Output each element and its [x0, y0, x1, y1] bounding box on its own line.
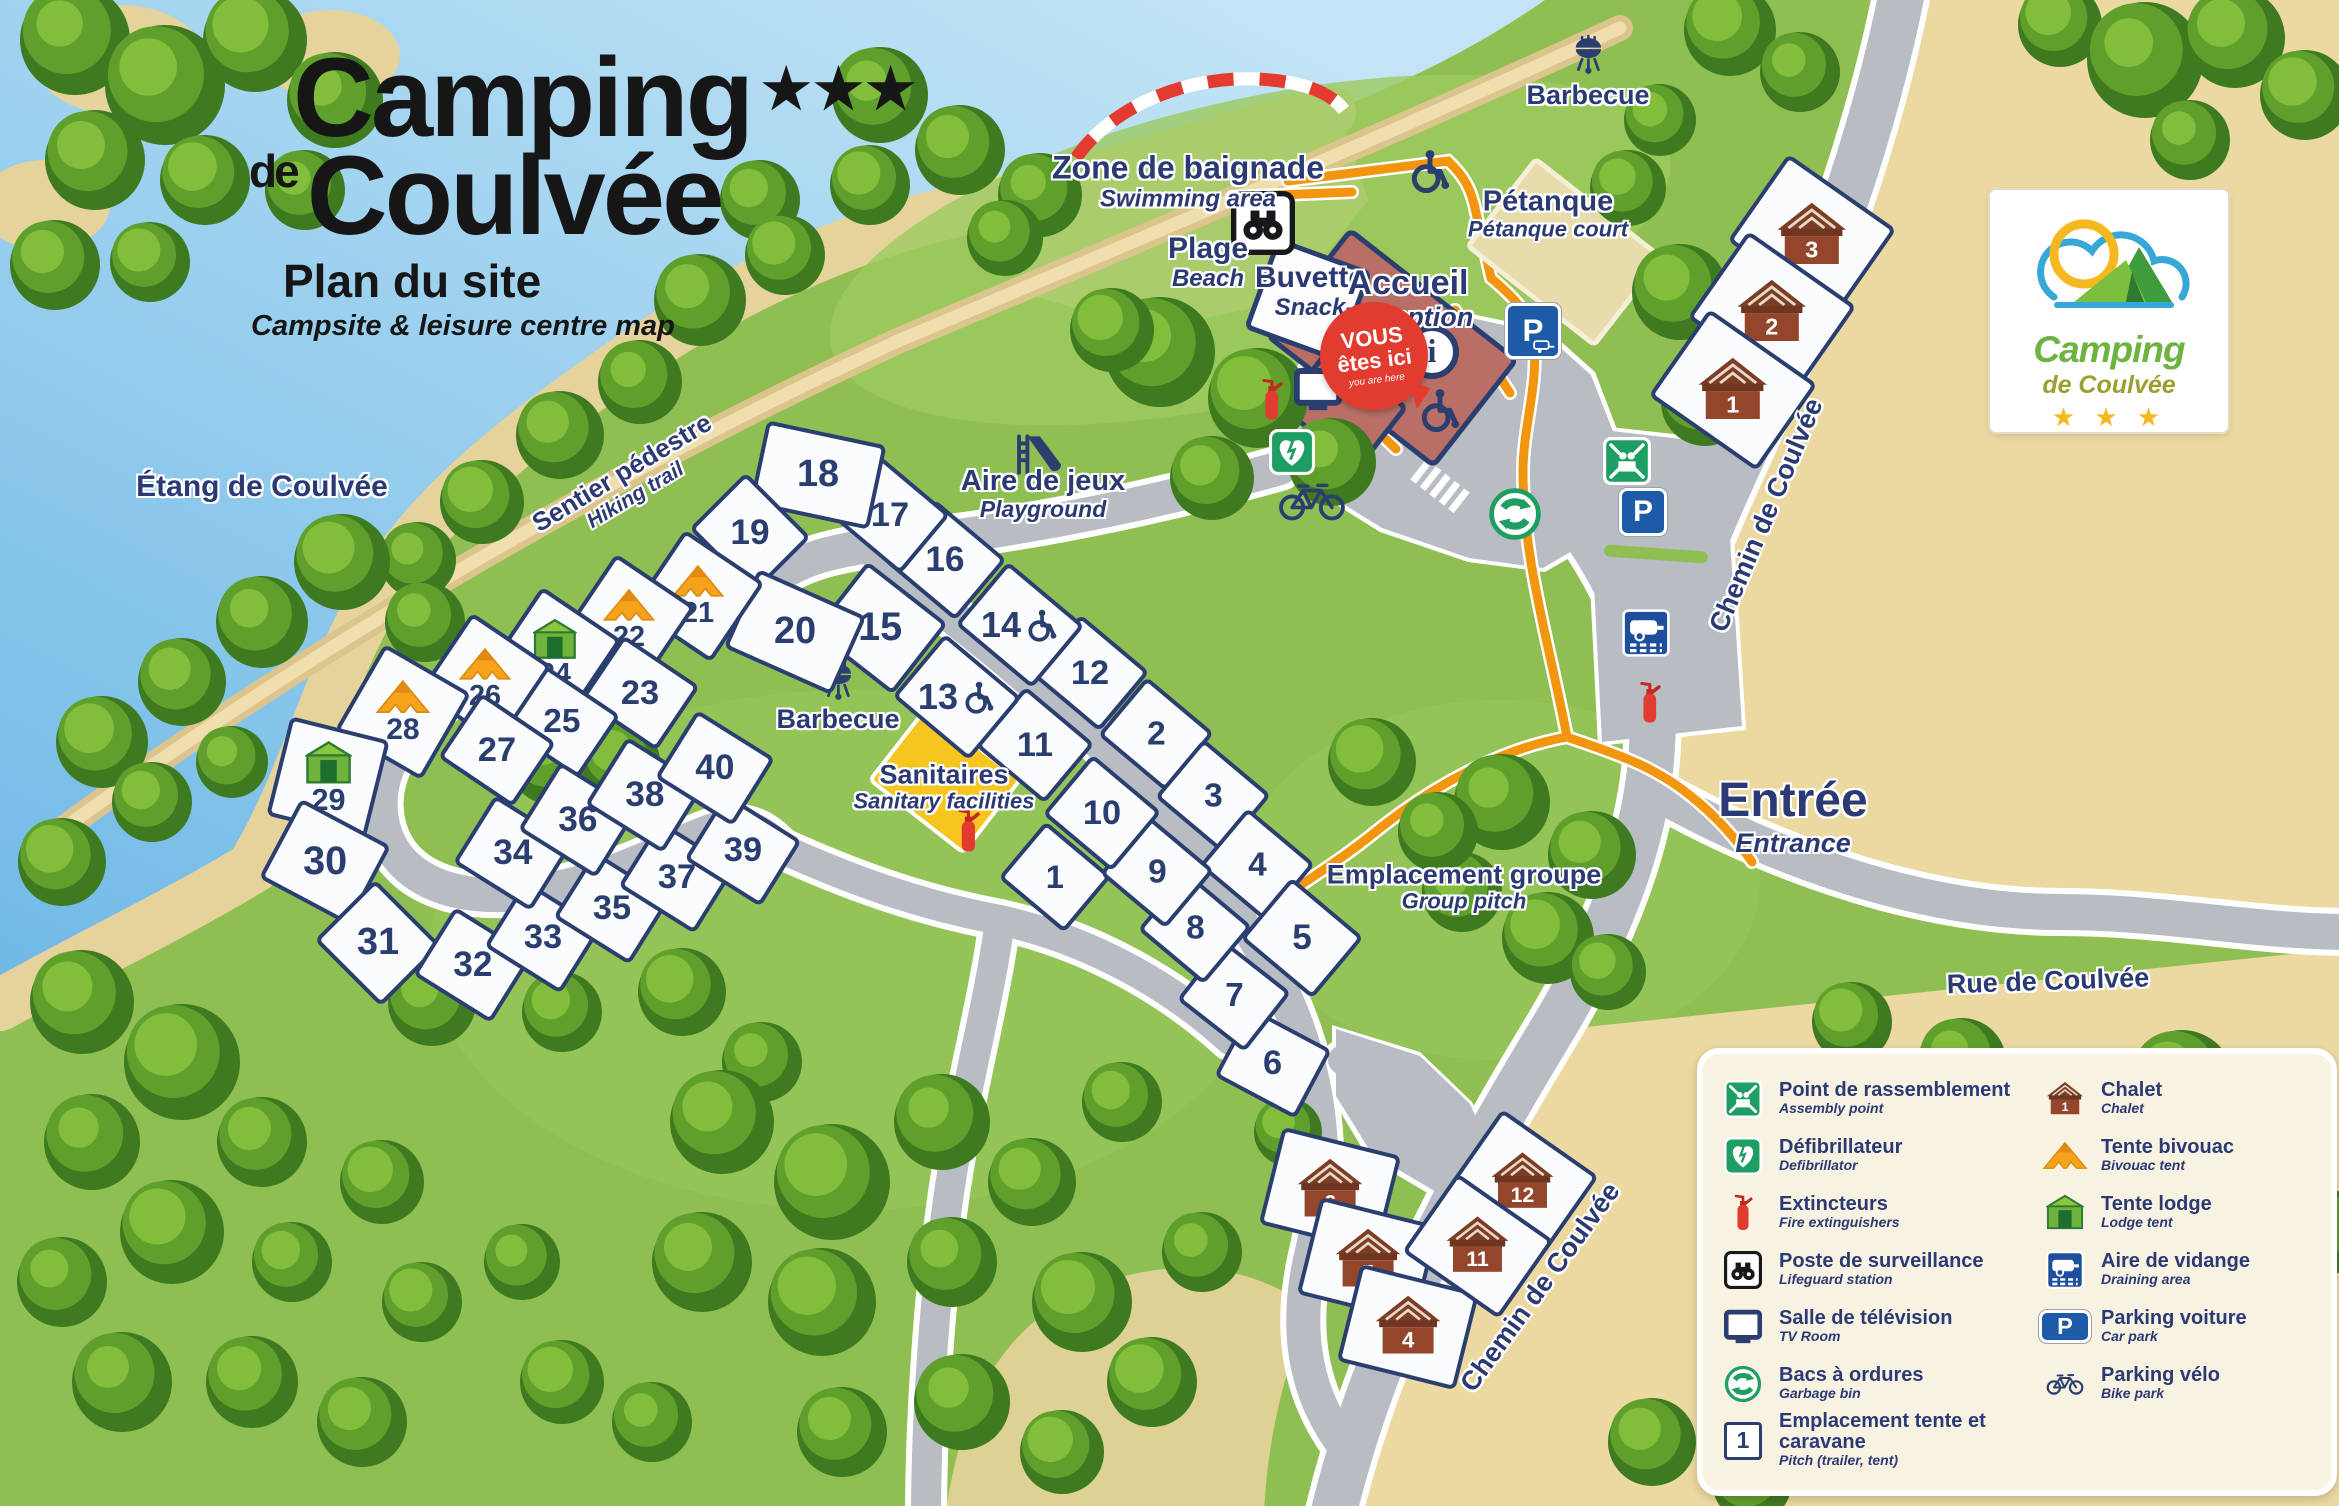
tree-icon — [797, 1387, 887, 1477]
label-entree: EntréeEntrance — [1718, 774, 1867, 858]
tree-icon — [2150, 100, 2230, 180]
chalet-icon: 11 — [1445, 1215, 1510, 1278]
tree-icon — [1032, 1252, 1132, 1352]
tree-icon — [17, 1237, 107, 1327]
binoculars-icon — [1717, 1251, 1769, 1289]
legend-label-en: Defibrillator — [1779, 1157, 1858, 1173]
legend-label-en: Draining area — [2101, 1271, 2190, 1287]
legend-label-en: Chalet — [2101, 1100, 2144, 1116]
tree-icon — [1170, 436, 1254, 520]
legend-item: DéfibrillateurDefibrillator — [1717, 1127, 2037, 1184]
tent-icon — [2039, 1141, 2091, 1171]
tree-icon — [294, 514, 390, 610]
tree-icon — [1082, 1062, 1162, 1142]
legend-label-en: Pitch (trailer, tent) — [1779, 1452, 1898, 1468]
legend-item: P Parking voitureCar park — [2039, 1298, 2329, 1355]
garbage-bin-icon — [1488, 487, 1542, 541]
bike-icon — [2039, 1371, 2091, 1396]
tree-icon — [206, 1336, 298, 1428]
tree-icon — [72, 1332, 172, 1432]
label-aire-de-jeux: Aire de jeuxPlayground — [961, 465, 1125, 523]
label-zone-baignade: Zone de baignadeSwimming area — [1052, 151, 1324, 214]
logo-stars-icon: ★ ★ ★ — [1990, 402, 2228, 433]
tree-icon — [30, 950, 134, 1054]
tree-icon — [894, 1074, 990, 1170]
chalet-icon: 1 — [1697, 356, 1769, 425]
svg-text:2: 2 — [1765, 313, 1778, 339]
tree-icon — [1070, 288, 1154, 372]
tree-icon — [1162, 1212, 1242, 1292]
tree-icon — [907, 1217, 997, 1307]
tree-icon — [217, 1097, 307, 1187]
legend-label-fr: Bacs à ordures — [1779, 1364, 1924, 1386]
lodge-icon — [2039, 1194, 2091, 1230]
tv-icon — [1717, 1309, 1769, 1345]
tree-icon — [484, 1224, 560, 1300]
logo-art-icon — [2014, 202, 2204, 322]
tree-icon — [216, 576, 308, 668]
campsite-logo: Camping de Coulvée ★ ★ ★ — [1990, 190, 2228, 432]
campsite-map-canvas: Camping★★★ deCoulvée Plan du site Campsi… — [0, 0, 2339, 1506]
title-de: de — [249, 148, 297, 194]
legend-item: Bacs à orduresGarbage bin — [1717, 1355, 2037, 1412]
fire-extinguisher-icon — [1627, 680, 1673, 726]
tree-icon — [10, 220, 100, 310]
defib-icon — [1717, 1137, 1769, 1175]
tree-icon — [670, 1070, 774, 1174]
legend-label-fr: Défibrillateur — [1779, 1136, 1902, 1158]
legend-label-fr: Point de rassemblement — [1779, 1079, 2010, 1101]
legend-column-right: 1 ChaletChalet Tente bivouacBivouac tent… — [2039, 1070, 2329, 1412]
svg-text:12: 12 — [1511, 1184, 1535, 1207]
label-sanitaires: SanitairesSanitary facilities — [854, 760, 1035, 815]
car-park-sign-icon: P — [1619, 488, 1667, 536]
tree-icon — [340, 1140, 424, 1224]
label-plage: PlageBeach — [1168, 232, 1248, 292]
chalet-icon: 4 — [1374, 1294, 1442, 1359]
map-subtitle-en: Campsite & leisure centre map — [251, 312, 918, 341]
legend-label-en: Assembly point — [1779, 1100, 1883, 1116]
tree-icon — [598, 340, 682, 424]
legend-label-en: Garbage bin — [1779, 1385, 1861, 1401]
parking-icon: P — [2039, 1310, 2091, 1343]
tree-icon — [774, 1124, 890, 1240]
legend-label-fr: Parking vélo — [2101, 1364, 2220, 1386]
tree-icon — [988, 1138, 1076, 1226]
svg-text:3: 3 — [1805, 236, 1818, 262]
tree-icon — [967, 200, 1043, 276]
tree-icon — [516, 391, 604, 479]
tree-icon — [1107, 1337, 1197, 1427]
map-title: Camping★★★ deCoulvée Plan du site Campsi… — [215, 42, 918, 341]
legend-label-en: Bivouac tent — [2101, 1157, 2185, 1173]
tree-icon — [120, 1180, 224, 1284]
legend-item: Parking véloBike park — [2039, 1355, 2329, 1412]
vidange-icon — [2039, 1251, 2091, 1289]
legend-label-en: TV Room — [1779, 1328, 1840, 1344]
tree-icon — [45, 110, 145, 210]
tree-icon — [252, 1222, 332, 1302]
legend-label-en: Lodge tent — [2101, 1214, 2173, 1230]
legend-item: 1 ChaletChalet — [2039, 1070, 2329, 1127]
car-park-sign-icon: P — [1505, 303, 1561, 359]
extinguisher-icon — [1717, 1193, 1769, 1233]
label-etang: Étang de Coulvée — [136, 470, 388, 504]
svg-text:1: 1 — [2062, 1100, 2069, 1114]
legend-item: Salle de télévisionTV Room — [1717, 1298, 2037, 1355]
legend-item: Aire de vidangeDraining area — [2039, 1241, 2329, 1298]
legend-label-fr: Poste de surveillance — [1779, 1250, 1984, 1272]
svg-text:4: 4 — [1402, 1328, 1415, 1353]
legend-label-fr: Salle de télévision — [1779, 1307, 1952, 1329]
legend-item: ExtincteursFire extinguishers — [1717, 1184, 2037, 1241]
legend-label-en: Fire extinguishers — [1779, 1214, 1900, 1230]
tree-icon — [138, 638, 226, 726]
legend-item: Tente lodgeLodge tent — [2039, 1184, 2329, 1241]
logo-name: Camping — [1990, 329, 2228, 371]
legend-label-fr: Emplacement tente et caravane — [1779, 1410, 1986, 1453]
fire-extinguisher-icon — [1249, 377, 1295, 423]
title-place: Coulvée — [307, 140, 722, 252]
tree-icon — [638, 948, 726, 1036]
tree-icon — [1608, 1398, 1696, 1486]
bike-park-icon — [1278, 466, 1346, 534]
tree-icon — [382, 1262, 462, 1342]
tree-icon — [915, 105, 1005, 195]
chalet-icon: 1 — [2039, 1081, 2091, 1115]
label-barbecue-centre: Barbecue — [776, 704, 899, 734]
svg-text:1: 1 — [1726, 391, 1739, 417]
legend-item: Point de rassemblementAssembly point — [1717, 1070, 2037, 1127]
legend-label-en: Bike park — [2101, 1385, 2164, 1401]
tree-icon — [110, 222, 190, 302]
legend-label-fr: Tente bivouac — [2101, 1136, 2234, 1158]
svg-text:11: 11 — [1467, 1248, 1490, 1271]
tree-icon — [914, 1354, 1010, 1450]
legend-label-fr: Extincteurs — [1779, 1193, 1888, 1215]
barbecue-icon — [1567, 35, 1609, 77]
tree-icon — [768, 1248, 876, 1356]
label-barbecue-nord: Barbecue — [1526, 80, 1649, 110]
tree-icon — [196, 726, 268, 798]
map-subtitle: Plan du site — [283, 258, 918, 304]
tree-icon — [112, 762, 192, 842]
logo-subname: de Coulvée — [1990, 371, 2228, 400]
legend-panel: Point de rassemblementAssembly point Déf… — [1697, 1048, 2337, 1496]
legend-label-fr: Tente lodge — [2101, 1193, 2212, 1215]
legend-label-en: Car park — [2101, 1328, 2158, 1344]
tree-icon — [1570, 934, 1646, 1010]
draining-area-icon — [1622, 609, 1670, 657]
tree-icon — [520, 1340, 604, 1424]
tree-icon — [1020, 1410, 1104, 1494]
assembly-icon — [1717, 1080, 1769, 1118]
stars-icon: ★★★ — [761, 57, 918, 120]
legend-label-fr: Chalet — [2101, 1079, 2162, 1101]
legend-label-fr: Parking voiture — [2101, 1307, 2247, 1329]
tree-icon — [1760, 32, 1840, 112]
legend-column-left: Point de rassemblementAssembly point Déf… — [1717, 1070, 2037, 1469]
legend-item: Poste de surveillanceLifeguard station — [1717, 1241, 2037, 1298]
tree-icon — [317, 1377, 407, 1467]
tree-icon — [440, 460, 524, 544]
tree-icon — [18, 818, 106, 906]
tree-icon — [44, 1094, 140, 1190]
legend-item: Tente bivouacBivouac tent — [2039, 1127, 2329, 1184]
tree-icon — [652, 1212, 752, 1312]
assembly-point-icon — [1603, 437, 1651, 485]
legend-label-en: Lifeguard station — [1779, 1271, 1893, 1287]
legend-item: 1 Emplacement tente et caravanePitch (tr… — [1717, 1412, 2037, 1469]
legend-label-fr: Aire de vidange — [2101, 1250, 2250, 1272]
tree-icon — [1328, 718, 1416, 806]
pitch-icon: 1 — [1717, 1422, 1769, 1460]
recycle-icon — [1717, 1365, 1769, 1403]
tree-icon — [612, 1382, 692, 1462]
wheelchair-icon — [1407, 148, 1453, 194]
label-petanque: PétanquePétanque court — [1468, 185, 1628, 242]
label-groupe: Emplacement groupeGroup pitch — [1327, 860, 1602, 915]
tree-icon — [124, 1004, 240, 1120]
